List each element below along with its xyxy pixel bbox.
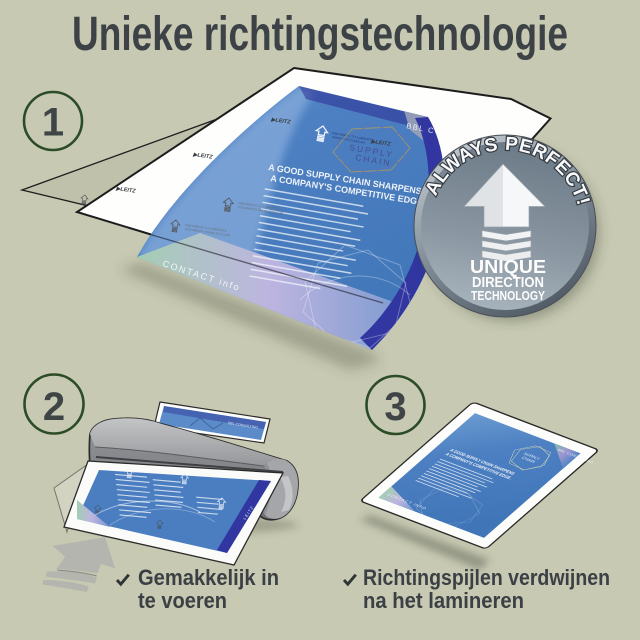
svg-text:2: 2 (43, 385, 65, 429)
svg-text:UNIQUE: UNIQUE (470, 257, 546, 277)
svg-text:TECHNOLOGY: TECHNOLOGY (471, 288, 545, 303)
svg-text:3: 3 (384, 385, 406, 429)
svg-text:1: 1 (42, 101, 64, 145)
svg-text:te voeren: te voeren (138, 588, 227, 613)
svg-text:Richtingspijlen verdwijnen: Richtingspijlen verdwijnen (363, 565, 610, 590)
svg-text:Unieke richtingstechnologie: Unieke richtingstechnologie (72, 8, 568, 61)
svg-text:Gemakkelijk in: Gemakkelijk in (138, 565, 279, 590)
svg-text:na het lamineren: na het lamineren (363, 588, 524, 613)
